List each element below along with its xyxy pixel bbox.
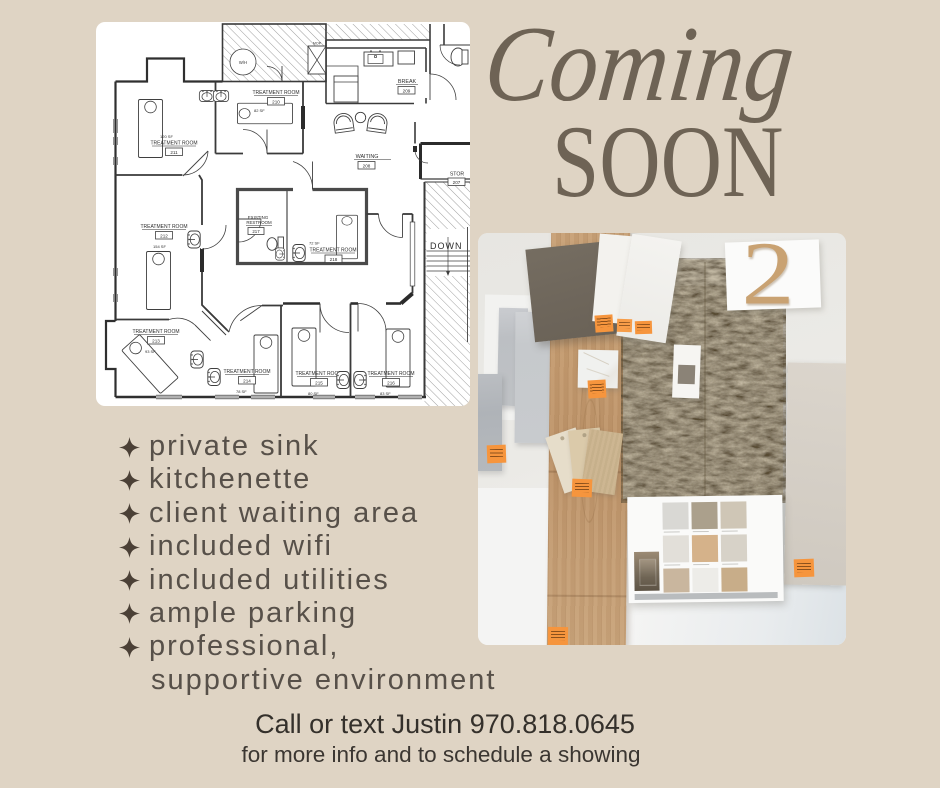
svg-text:78 SF: 78 SF <box>236 389 247 394</box>
svg-text:93 SF: 93 SF <box>145 349 156 354</box>
svg-text:TREATMENT ROOM: TREATMENT ROOM <box>367 371 414 377</box>
svg-text:208: 208 <box>363 164 371 169</box>
svg-text:209: 209 <box>403 89 411 94</box>
svg-text:120 SF: 120 SF <box>160 134 173 139</box>
svg-text:207: 207 <box>453 180 461 185</box>
svg-text:80 SF: 80 SF <box>308 391 319 396</box>
svg-text:212: 212 <box>160 234 168 239</box>
svg-text:W/H: W/H <box>239 60 247 65</box>
svg-text:72 SF: 72 SF <box>309 241 320 246</box>
svg-text:TREATMENT ROOM: TREATMENT ROOM <box>150 141 197 147</box>
svg-text:215: 215 <box>315 381 323 386</box>
svg-text:TREATMENT ROOM: TREATMENT ROOM <box>252 90 299 96</box>
svg-text:210: 210 <box>272 100 280 105</box>
svg-text:83 SF: 83 SF <box>380 391 391 396</box>
svg-text:214: 214 <box>243 379 251 384</box>
svg-text:216: 216 <box>387 381 395 386</box>
svg-text:82 SF: 82 SF <box>254 108 265 113</box>
svg-text:MOP: MOP <box>313 42 322 46</box>
svg-text:154 SF: 154 SF <box>153 244 166 249</box>
svg-text:213: 213 <box>152 339 160 344</box>
svg-text:218: 218 <box>330 257 338 262</box>
svg-text:DOWN: DOWN <box>430 241 463 251</box>
svg-text:WAITING: WAITING <box>356 154 379 160</box>
svg-text:TREATMENT ROOM: TREATMENT ROOM <box>140 224 187 230</box>
svg-text:TREATMENT ROOM: TREATMENT ROOM <box>309 248 356 254</box>
svg-text:TREATMENT ROOM: TREATMENT ROOM <box>223 369 270 375</box>
svg-text:211: 211 <box>170 150 178 155</box>
svg-text:TREATMENT ROOM: TREATMENT ROOM <box>132 329 179 335</box>
svg-text:RESTROOM: RESTROOM <box>246 220 272 225</box>
svg-text:TREATMENT ROOM: TREATMENT ROOM <box>295 371 342 377</box>
svg-text:217: 217 <box>252 229 260 234</box>
svg-text:STOR: STOR <box>450 172 465 178</box>
svg-text:BREAK: BREAK <box>398 79 417 85</box>
